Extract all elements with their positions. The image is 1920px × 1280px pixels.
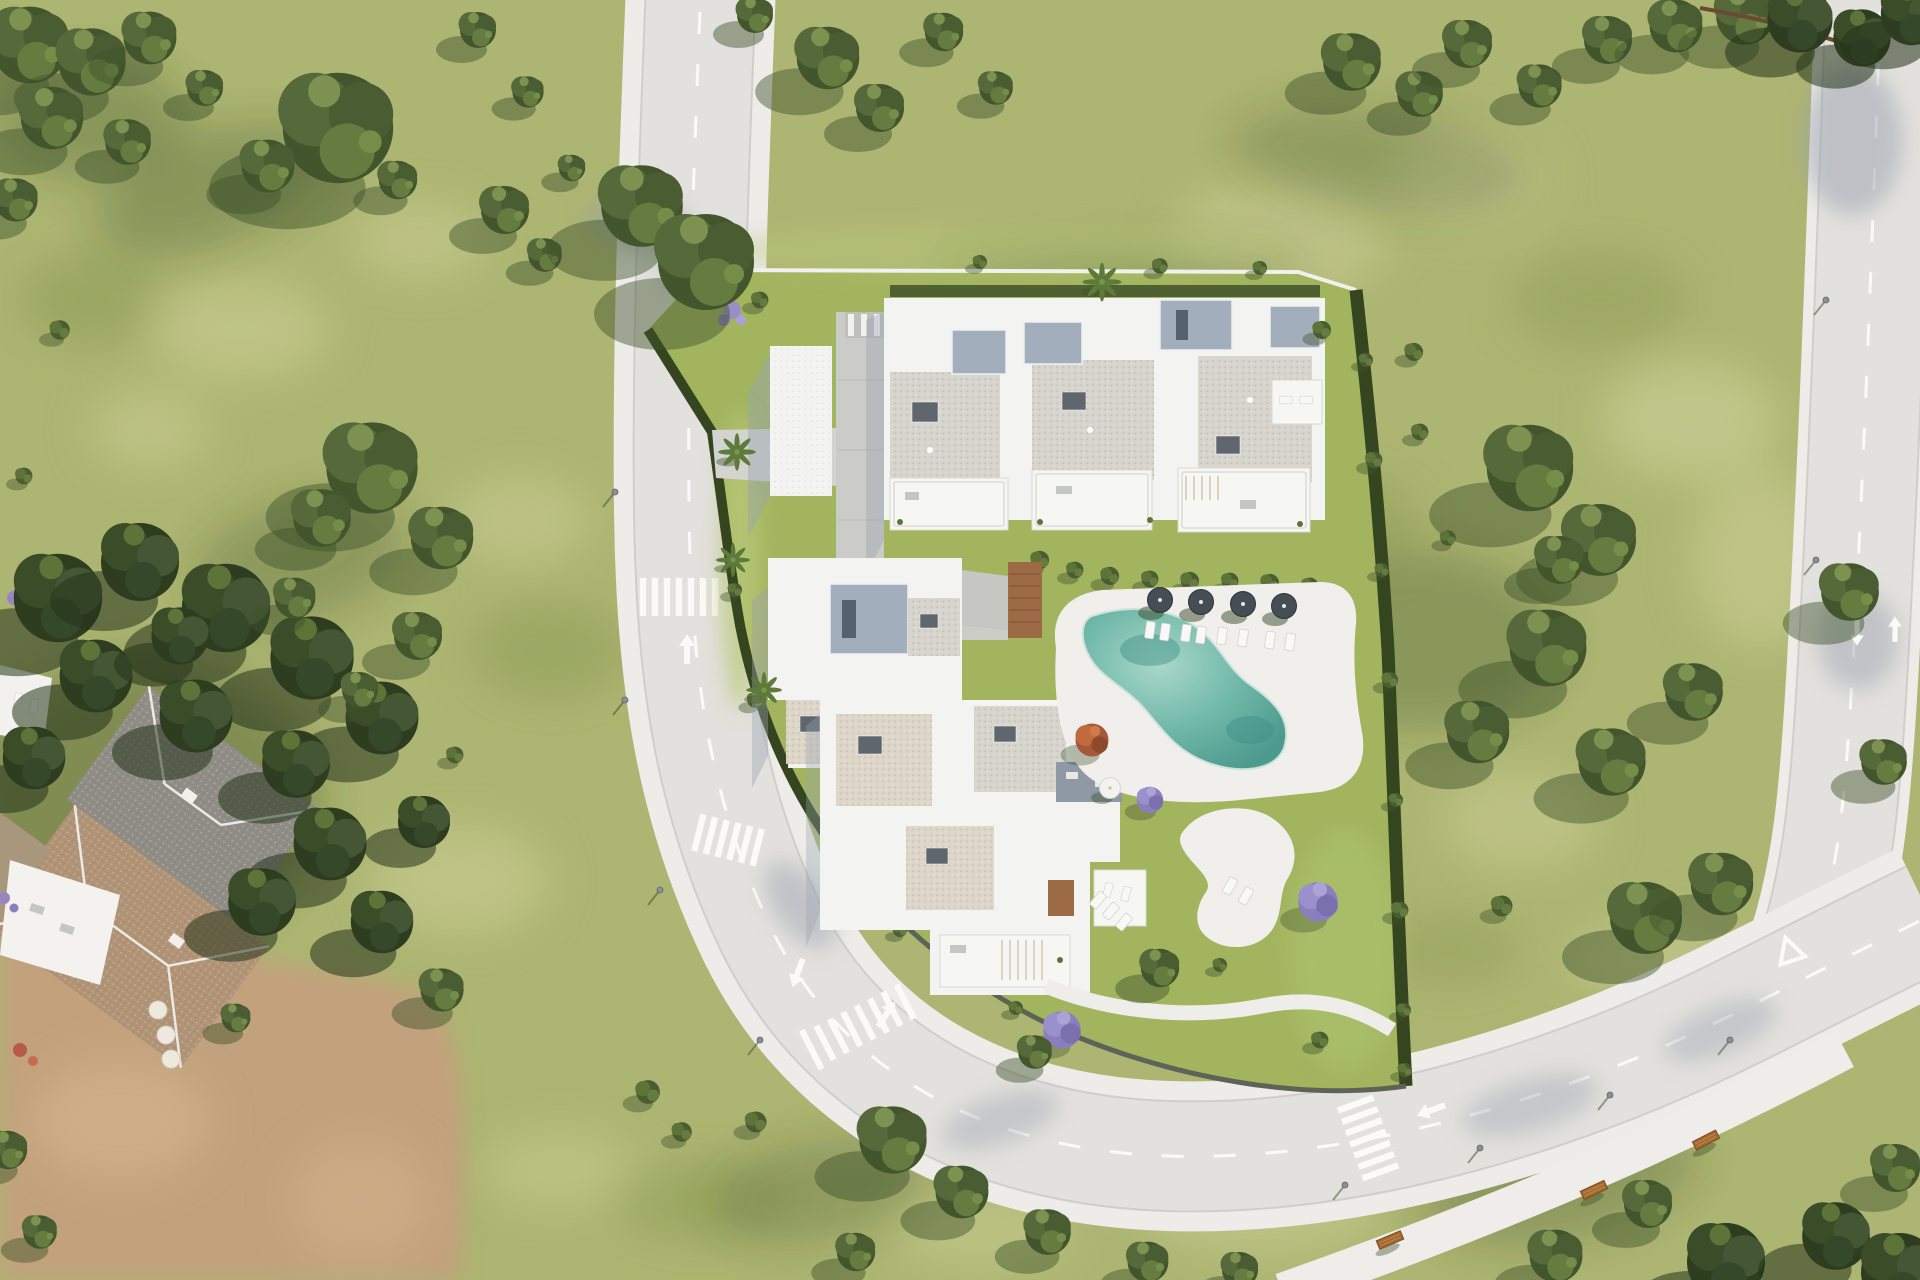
skylight xyxy=(926,848,948,864)
skylight xyxy=(912,402,938,422)
penthouse-volume xyxy=(1024,322,1082,364)
terrace-parasol xyxy=(149,1001,167,1019)
wood-walkway xyxy=(1008,562,1042,638)
skylight xyxy=(920,614,938,628)
penthouse-volume xyxy=(830,584,908,654)
skylight xyxy=(1062,392,1086,410)
penthouse-volume xyxy=(1160,300,1232,350)
skylight xyxy=(1216,436,1240,454)
aerial-scene xyxy=(0,0,1920,1280)
terrace-parasol xyxy=(157,1026,175,1044)
aerial-render xyxy=(0,0,1920,1280)
skylight xyxy=(994,726,1016,742)
penthouse-volume xyxy=(952,330,1006,374)
terrace-parasol xyxy=(162,1050,180,1068)
skylight xyxy=(858,736,882,754)
wood-panel xyxy=(1048,880,1074,916)
